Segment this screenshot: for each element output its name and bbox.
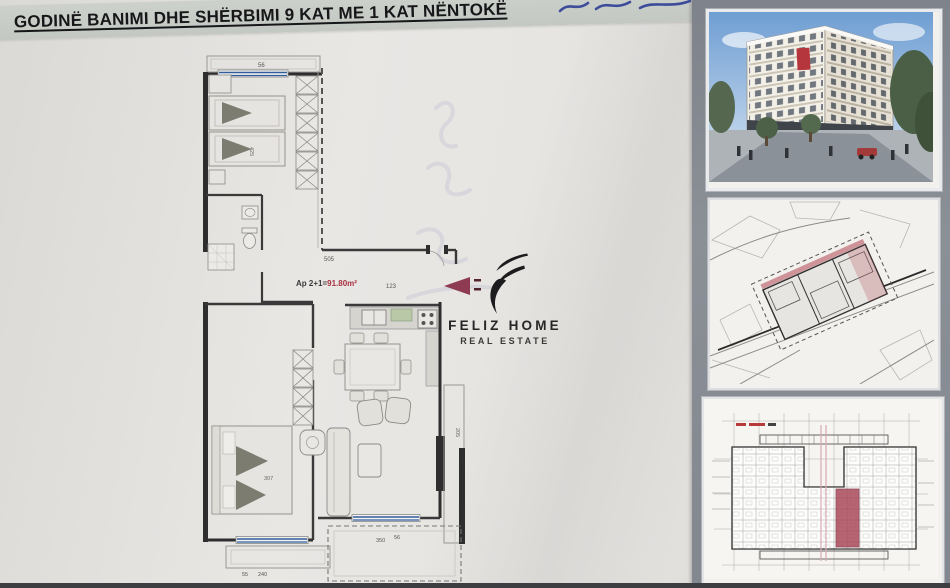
dining-table [334, 333, 411, 401]
bed-double [212, 426, 292, 514]
bedroom2: 307 [203, 302, 313, 544]
apartment-label-prefix: Ap 2+1= [296, 279, 327, 288]
balcony-top: 56 [207, 56, 320, 72]
balcony-right: 205 [444, 385, 465, 544]
coffee-table [358, 444, 381, 477]
dim-label: 123 [386, 284, 397, 290]
dim-label: 205 [454, 428, 460, 437]
photographed-real-estate-sheet: { "title": { "text": "GODINË BANIMI DHE … [0, 0, 950, 588]
sink [242, 206, 258, 219]
dim-label: 56 [394, 535, 400, 541]
dim-label: 425 [248, 147, 254, 156]
site-plan-image [708, 198, 940, 390]
dim-label: 350 [376, 538, 385, 544]
photo-bottom-edge [0, 583, 950, 588]
logo-title: FELIZ HOME [430, 318, 580, 333]
handwriting-ink-mark [556, 0, 696, 16]
balcony-bottom-left: 55 240 [226, 546, 330, 578]
wardrobe [296, 76, 318, 189]
wardrobe-2 [293, 350, 313, 425]
dim-label: 307 [264, 476, 273, 482]
bed-single-2 [209, 132, 285, 166]
highlighted-apartment [836, 489, 859, 547]
page-title: GODINË BANIMI DHE SHËRBIMI 9 KAT ME 1 KA… [0, 0, 507, 33]
balcony-bottom-right: 350 56 [328, 526, 461, 581]
building-render-image [706, 9, 942, 191]
apartment-area-value: 91.80m² [327, 279, 357, 288]
dim-label: 505 [324, 257, 335, 263]
red-banner [796, 48, 810, 71]
kitchen-sink [362, 310, 386, 325]
bathroom [206, 195, 262, 303]
window-living [352, 515, 420, 522]
feliz-home-logo-icon [469, 252, 541, 316]
sofa [327, 428, 350, 516]
kitchen-counter-item [391, 309, 412, 321]
dim-label: 56 [258, 63, 265, 69]
bed-single-1 [209, 96, 285, 130]
logo-subtitle: REAL ESTATE [430, 336, 580, 346]
side-image-panel [692, 0, 950, 588]
plan-red-label [736, 423, 776, 426]
pouf [300, 430, 325, 455]
dim-label: 240 [258, 572, 267, 578]
toilet [242, 228, 257, 249]
dim-label: 55 [242, 572, 248, 578]
agency-logo: FELIZ HOME REAL ESTATE [430, 252, 580, 346]
window-bedroom2 [236, 537, 308, 544]
typical-floor-plan-image [702, 397, 944, 585]
nightstand [209, 170, 225, 184]
cabinet [209, 75, 231, 93]
shower [208, 244, 234, 270]
svg-text:Ap 2+1=91.80m²: Ap 2+1=91.80m² [296, 279, 357, 288]
